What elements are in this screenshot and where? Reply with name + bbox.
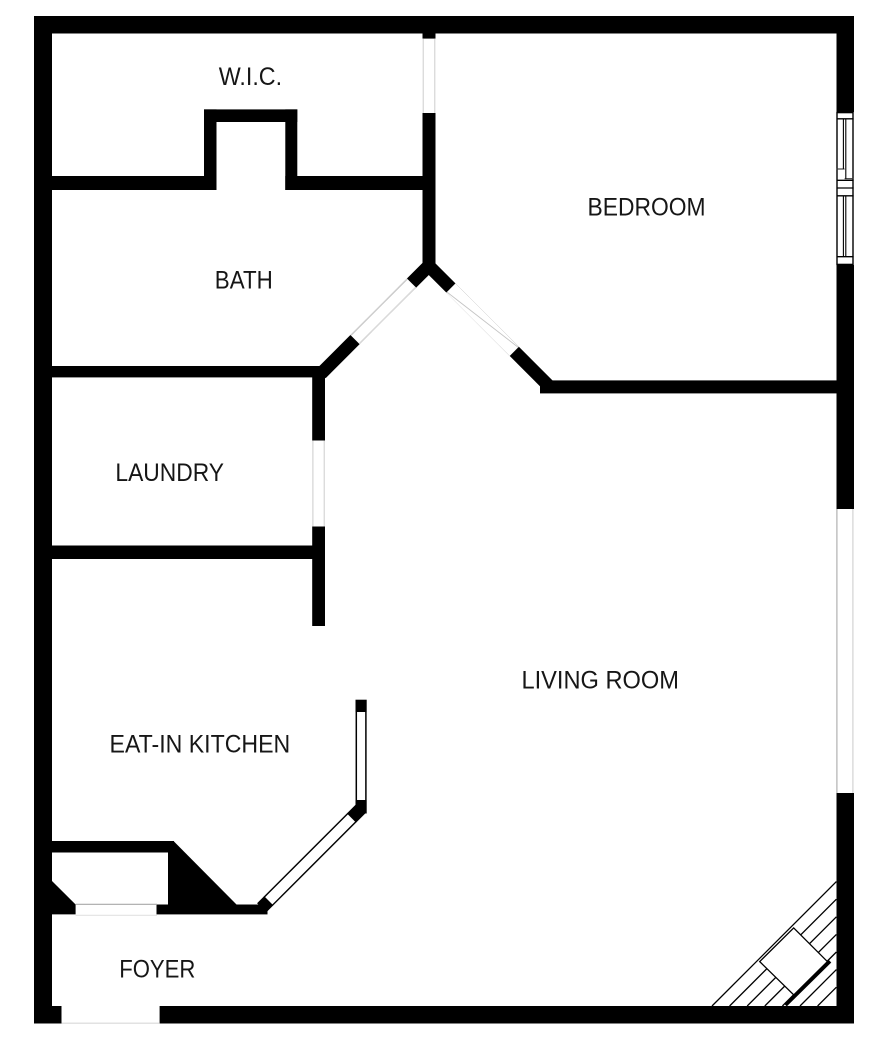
svg-text:LIVING ROOM: LIVING ROOM [521, 667, 679, 695]
svg-text:EAT-IN KITCHEN: EAT-IN KITCHEN [110, 731, 291, 759]
svg-text:BEDROOM: BEDROOM [588, 193, 706, 221]
svg-text:LAUNDRY: LAUNDRY [115, 459, 224, 487]
svg-text:BATH: BATH [215, 267, 273, 295]
svg-text:W.I.C.: W.I.C. [219, 63, 282, 91]
svg-text:FOYER: FOYER [119, 956, 195, 984]
